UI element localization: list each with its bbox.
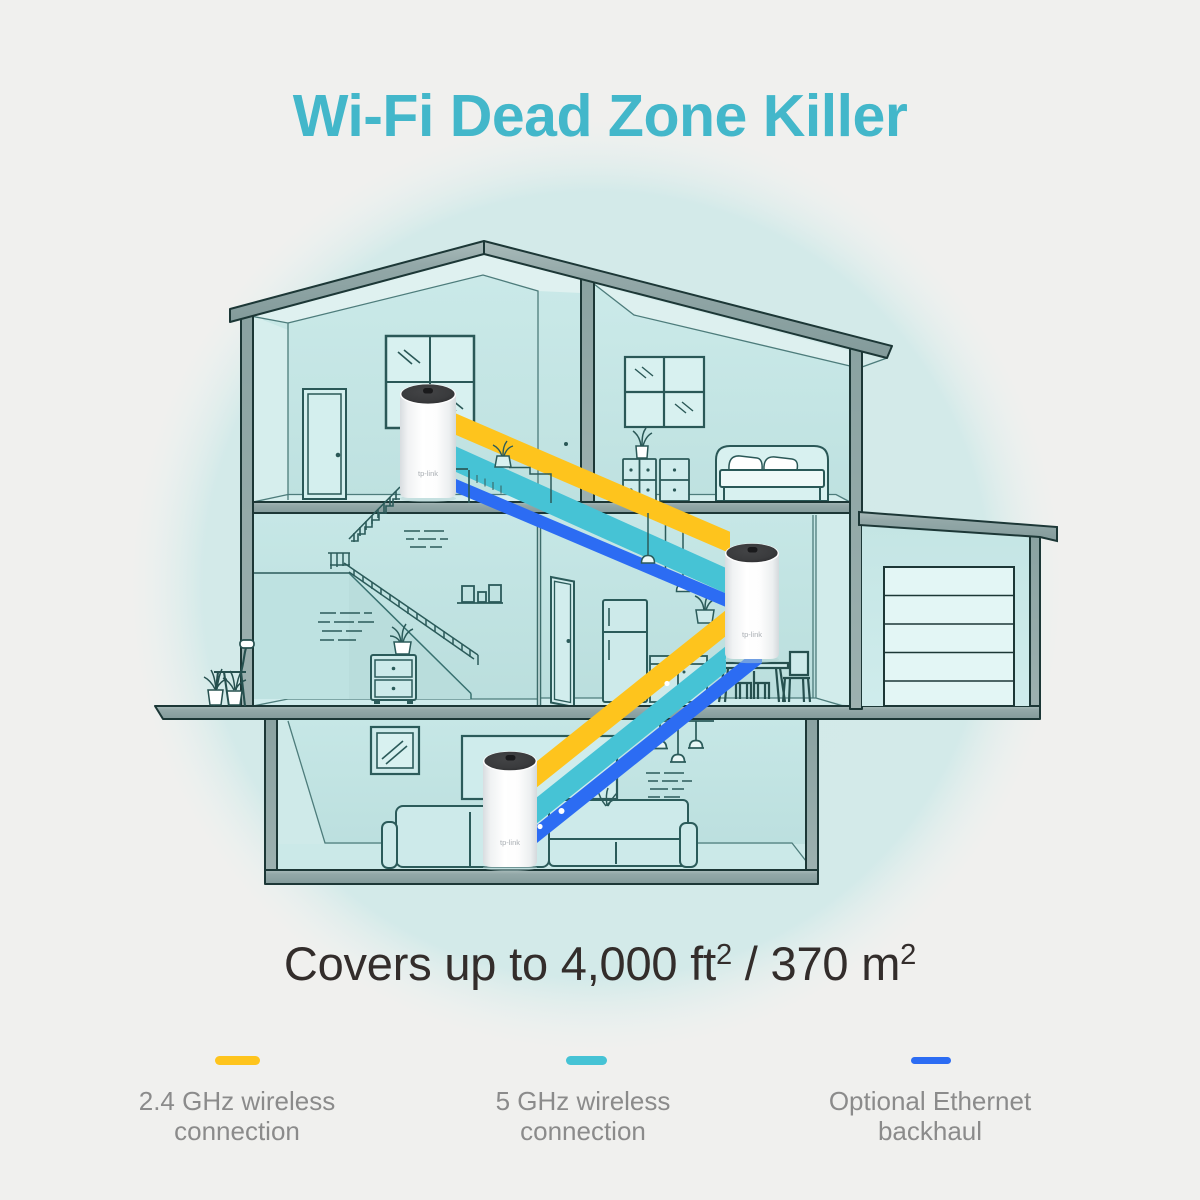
svg-text:tp-link: tp-link bbox=[500, 838, 520, 847]
svg-text:tp-link: tp-link bbox=[418, 469, 438, 478]
svg-text:tp-link: tp-link bbox=[742, 630, 762, 639]
